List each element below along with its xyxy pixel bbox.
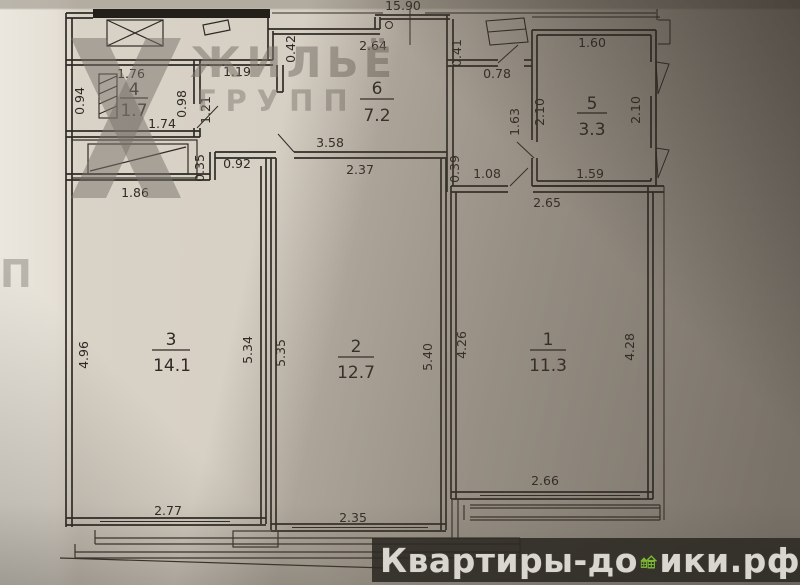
dim-passage-108: 1.08 <box>473 166 501 181</box>
dim-overall-width: 15.90 <box>385 0 421 13</box>
dim-step-035: 0.35 <box>192 154 207 182</box>
dim-room2-top: 2.37 <box>346 162 374 177</box>
dim-room1-right: 4.28 <box>622 333 637 361</box>
room2-number: 2 <box>351 337 362 357</box>
dim-room1-left: 4.26 <box>454 331 469 359</box>
floorplan-photo: 15.90 1.76 4 1.7 0.94 0.98 1.74 1.86 1.1… <box>0 0 800 585</box>
dim-room2-right: 5.40 <box>420 343 435 371</box>
agency-watermark-partial-letter: П <box>0 252 32 296</box>
site-watermark-bar: Квартиры-до ики.рф <box>372 538 800 582</box>
room2-area: 12.7 <box>337 363 375 383</box>
dim-room5-right: 2.10 <box>628 96 643 124</box>
site-name-suffix: ики.рф <box>659 541 800 580</box>
site-name-prefix: Квартиры-до <box>380 541 638 580</box>
green-houses-icon <box>640 539 657 585</box>
dim-stub-039: 0.39 <box>447 155 462 183</box>
dim-room2-left: 5.35 <box>273 339 288 367</box>
room3-number: 3 <box>166 330 177 350</box>
room1-area: 11.3 <box>529 356 567 376</box>
dim-room5-top: 1.60 <box>578 35 606 50</box>
dim-room2-bottom: 2.35 <box>339 510 367 525</box>
agency-logo-icon <box>66 33 186 203</box>
dim-hall-078: 0.78 <box>483 66 511 81</box>
dim-room5-left: 2.10 <box>532 98 547 126</box>
dim-room3-left: 4.96 <box>76 341 91 369</box>
dim-room1-top: 2.65 <box>533 195 561 210</box>
room1-number: 1 <box>543 330 554 350</box>
agency-watermark-line2: ГРУПП <box>197 84 358 118</box>
room3-area: 14.1 <box>153 356 191 376</box>
dim-room5-bottom: 1.59 <box>576 166 604 181</box>
dim-hall-163: 1.63 <box>507 108 522 136</box>
room6-area: 7.2 <box>363 106 390 126</box>
room5-number: 5 <box>587 94 598 114</box>
dim-corridor-358: 3.58 <box>316 135 344 150</box>
room5-area: 3.3 <box>578 120 605 140</box>
dim-room3-right: 5.34 <box>240 336 255 364</box>
agency-watermark-line1: ЖИЛЬЁ <box>190 38 397 87</box>
dim-step-092: 0.92 <box>223 156 251 171</box>
dim-hall-041: 0.41 <box>449 39 464 67</box>
dim-room1-bottom: 2.66 <box>531 473 559 488</box>
dim-room3-bottom: 2.77 <box>154 503 182 518</box>
